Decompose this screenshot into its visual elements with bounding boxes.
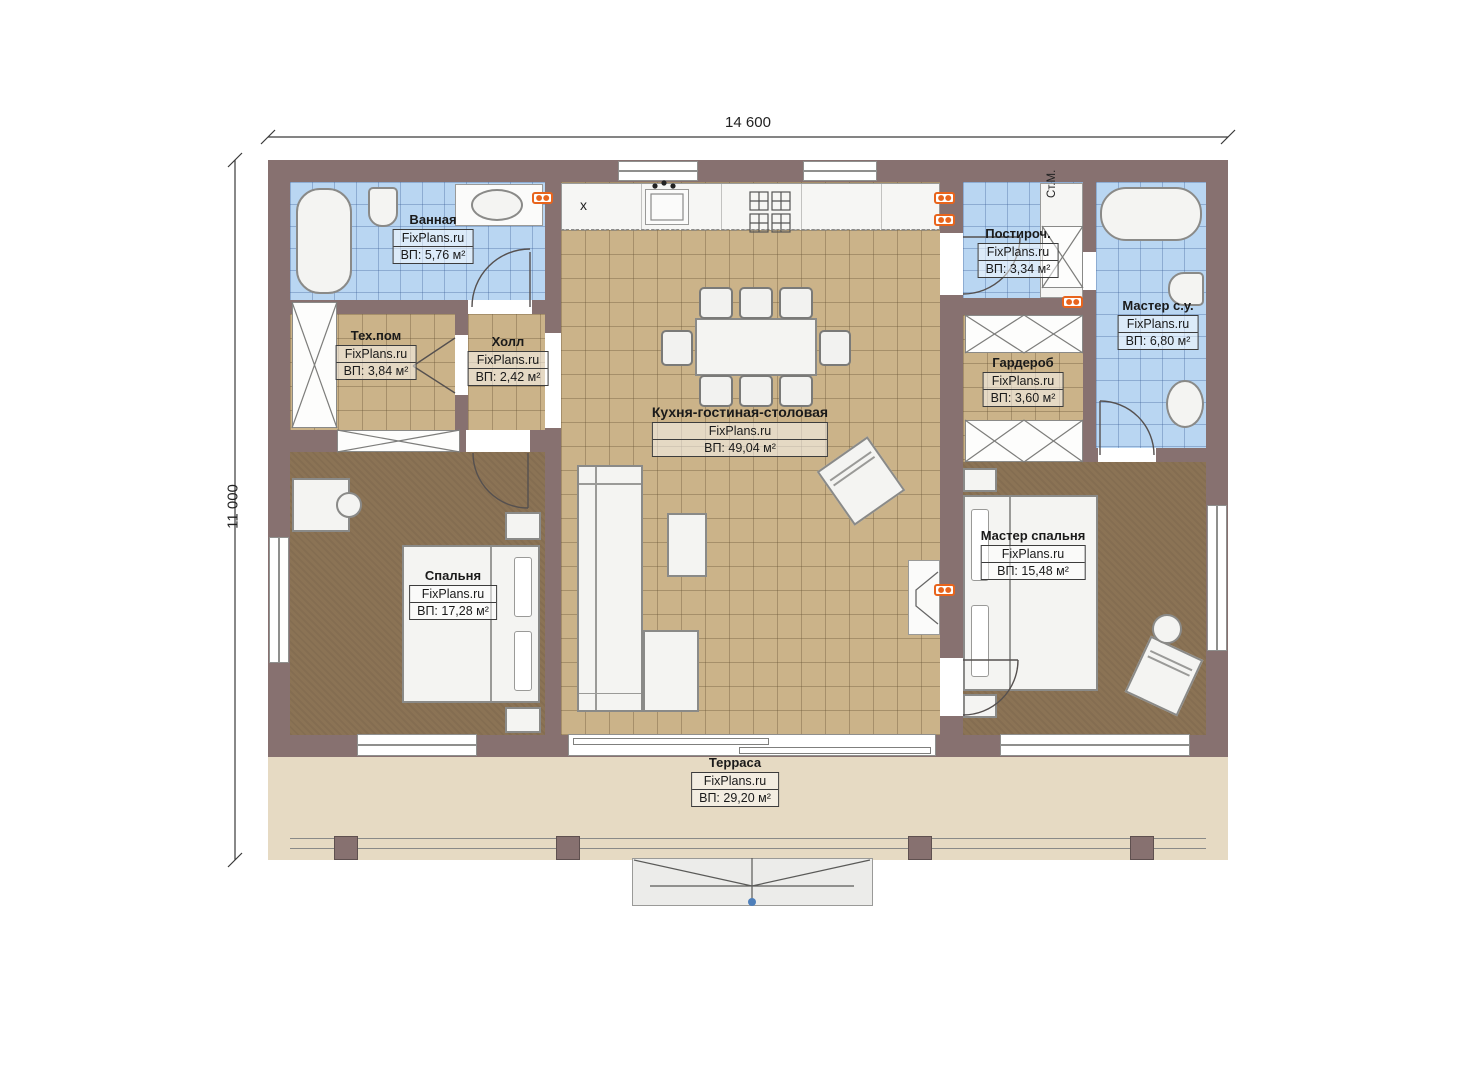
dining-chair xyxy=(779,287,813,319)
outlet-icon xyxy=(934,214,955,226)
room-label-master-bath: Мастер с.у. FixPlans.ru ВП: 6,80 м² xyxy=(1118,298,1199,350)
room-name: Мастер с.у. xyxy=(1118,298,1199,313)
room-name: Мастер спальня xyxy=(981,528,1086,543)
fixplans-watermark: FixPlans.ru xyxy=(692,773,778,790)
fixplans-watermark: FixPlans.ru xyxy=(337,346,416,363)
bedroom-door-gap xyxy=(466,430,530,452)
dining-chair xyxy=(739,375,773,407)
desk-stool xyxy=(336,492,362,518)
blanket-line xyxy=(1009,497,1011,689)
kitchen-counter xyxy=(561,183,940,230)
sliding-door-leaf xyxy=(739,747,931,754)
room-label-master-bedroom: Мастер спальня FixPlans.ru ВП: 15,48 м² xyxy=(981,528,1086,580)
bathtub xyxy=(296,188,352,294)
room-area: ВП: 3,34 м² xyxy=(979,261,1058,277)
master-bathtub xyxy=(1100,187,1202,241)
dining-chair xyxy=(819,330,851,366)
room-label-wardrobe: Гардероб FixPlans.ru ВП: 3,60 м² xyxy=(983,355,1064,407)
terrace-post xyxy=(1130,836,1154,860)
fixplans-watermark: FixPlans.ru xyxy=(410,586,496,603)
laundry-door-gap xyxy=(940,233,963,295)
master-bedroom-window-bottom xyxy=(1000,734,1190,756)
room-area: ВП: 5,76 м² xyxy=(394,247,473,263)
tech-closet xyxy=(292,302,337,428)
dining-table xyxy=(695,318,817,376)
room-label-laundry: Постироч. FixPlans.ru ВП: 3,34 м² xyxy=(978,226,1059,278)
room-label-hall: Холл FixPlans.ru ВП: 2,42 м² xyxy=(468,334,549,386)
fixplans-watermark: FixPlans.ru xyxy=(982,546,1085,563)
dining-chair xyxy=(699,375,733,407)
kitchen-window xyxy=(803,161,877,181)
master-bedroom-window-right xyxy=(1207,505,1227,651)
room-name: Гардероб xyxy=(983,355,1064,370)
fixplans-watermark: FixPlans.ru xyxy=(984,373,1063,390)
nightstand xyxy=(963,694,997,718)
bathroom-sink xyxy=(471,189,523,221)
terrace-post xyxy=(556,836,580,860)
bedroom-window-bottom xyxy=(357,734,477,756)
nightstand xyxy=(505,512,541,540)
dining-chair xyxy=(699,287,733,319)
terrace-railing xyxy=(290,848,1206,849)
dimension-height: 11 000 xyxy=(225,462,242,552)
room-label-bedroom: Спальня FixPlans.ru ВП: 17,28 м² xyxy=(409,568,497,620)
tech-door-gap xyxy=(455,335,468,395)
coffee-table xyxy=(667,513,707,577)
room-name: Холл xyxy=(468,334,549,349)
room-name: Тех.пом xyxy=(336,328,417,343)
room-area: ВП: 2,42 м² xyxy=(469,369,548,385)
sofa xyxy=(577,465,643,712)
room-label-kitchen-living: Кухня-гостиная-столовая FixPlans.ru ВП: … xyxy=(652,404,828,457)
sofa-back-line xyxy=(595,467,597,710)
dining-chair xyxy=(779,375,813,407)
kitchen-x-mark: x xyxy=(580,197,587,213)
master-sink xyxy=(1166,380,1204,428)
outlet-icon xyxy=(1062,296,1083,308)
terrace-post xyxy=(334,836,358,860)
nightstand xyxy=(963,468,997,492)
pillow xyxy=(971,605,989,677)
kitchen-sink xyxy=(645,189,689,225)
wardrobe-closet-top xyxy=(965,315,1083,353)
dimension-width: 14 600 xyxy=(698,114,798,131)
room-label-bathroom: Ванная FixPlans.ru ВП: 5,76 м² xyxy=(393,212,474,264)
floor-plan: 14 600 11 000 Ст.М. x Ванная FixPlans.ru… xyxy=(0,0,1474,1080)
outlet-icon xyxy=(532,192,553,204)
armchair-back-line xyxy=(833,456,875,486)
pillow xyxy=(514,631,532,691)
tv-unit xyxy=(908,560,940,635)
sliding-door-leaf xyxy=(573,738,769,745)
dining-chair xyxy=(739,287,773,319)
fixplans-watermark: FixPlans.ru xyxy=(394,230,473,247)
room-name: Ванная xyxy=(393,212,474,227)
room-label-tech-room: Тех.пом FixPlans.ru ВП: 3,84 м² xyxy=(336,328,417,380)
fixplans-watermark: FixPlans.ru xyxy=(1119,316,1198,333)
wardrobe-closet-bottom xyxy=(965,420,1083,462)
washing-machine-label: Ст.М. xyxy=(1046,170,1058,198)
master-bedroom-door-gap xyxy=(940,658,963,716)
room-name: Терраса xyxy=(691,755,779,770)
bath-nook-gap xyxy=(1083,252,1096,290)
terrace-post xyxy=(908,836,932,860)
bedroom-window-left xyxy=(269,537,289,663)
master-bed xyxy=(963,495,1098,691)
room-name: Спальня xyxy=(409,568,497,583)
pillow xyxy=(514,557,532,617)
nightstand xyxy=(505,707,541,733)
room-area: ВП: 3,84 м² xyxy=(337,363,416,379)
room-label-terrace: Терраса FixPlans.ru ВП: 29,20 м² xyxy=(691,755,779,807)
outlet-icon xyxy=(934,192,955,204)
room-area: ВП: 49,04 м² xyxy=(653,440,827,456)
dining-chair xyxy=(661,330,693,366)
sofa-armrest xyxy=(579,693,641,695)
master-bath-door-gap xyxy=(1098,448,1156,462)
room-name: Постироч. xyxy=(978,226,1059,241)
outlet-icon xyxy=(934,584,955,596)
terrace-sliding-door xyxy=(568,734,936,756)
room-name: Кухня-гостиная-столовая xyxy=(652,404,828,420)
kitchen-window xyxy=(618,161,698,181)
entry-steps xyxy=(632,858,873,906)
room-area: ВП: 17,28 м² xyxy=(410,603,496,619)
fixplans-watermark: FixPlans.ru xyxy=(469,352,548,369)
sofa-ottoman xyxy=(643,630,699,712)
terrace-railing xyxy=(290,838,1206,839)
room-area: ВП: 29,20 м² xyxy=(692,790,778,806)
bathroom-door-gap xyxy=(468,300,532,314)
fixplans-watermark: FixPlans.ru xyxy=(979,244,1058,261)
room-area: ВП: 6,80 м² xyxy=(1119,333,1198,349)
sofa-armrest xyxy=(579,483,641,485)
side-table xyxy=(1152,614,1182,644)
room-area: ВП: 3,60 м² xyxy=(984,390,1063,406)
bedroom-wardrobe xyxy=(337,430,460,452)
room-area: ВП: 15,48 м² xyxy=(982,563,1085,579)
fixplans-watermark: FixPlans.ru xyxy=(653,423,827,440)
